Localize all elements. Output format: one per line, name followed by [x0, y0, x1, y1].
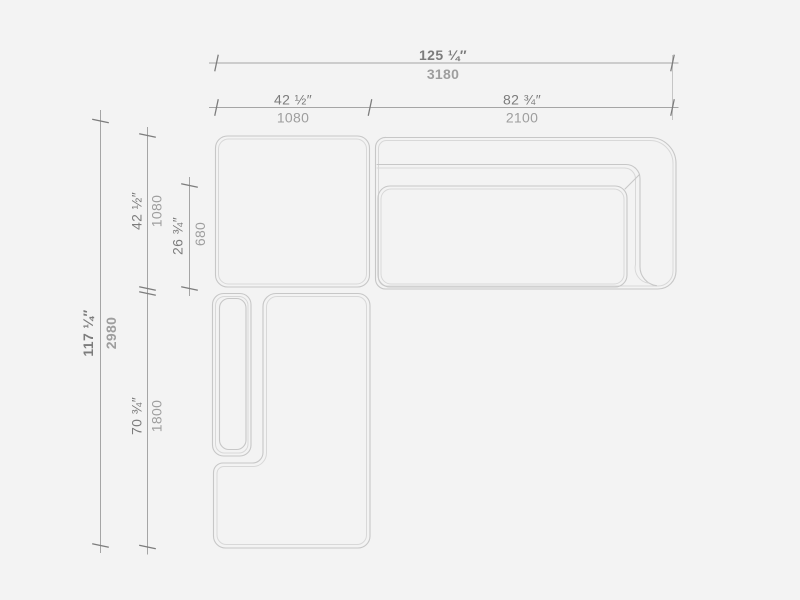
dim-overall-depth-inches-label: 117 ¼″ [80, 309, 96, 356]
sofa-seat-cushion-inner [381, 189, 624, 284]
sofa-corner-seam-line [625, 175, 640, 190]
dim-corner-width-mm-label: 1080 [277, 109, 309, 125]
sofa-module-inner-outline [379, 141, 674, 287]
dim-corner-depth-mm-label: 1080 [148, 195, 164, 227]
dim-overall-depth-mm-label: 2980 [103, 317, 119, 349]
dimension-lines [101, 55, 679, 555]
dim-cushion-depth-inches-label: 26 ¾″ [169, 217, 185, 255]
dim-chaise-depth-inches-label: 70 ¾″ [128, 397, 144, 435]
sofa-backrest-inner-line [377, 165, 657, 286]
sofa-seat-cushion-outer [378, 186, 627, 287]
dimension-labels: 125 ¼″ 3180 42 ½″ 1080 82 ¾″ 2100 117 ¼″… [80, 47, 541, 435]
chaise-armrest-cushion [220, 299, 247, 450]
dim-overall-width-mm-label: 3180 [427, 66, 459, 82]
chaise-armrest-inner-outline [216, 297, 249, 454]
dim-overall-width-inches-label: 125 ¼″ [419, 47, 467, 63]
dim-sofa-width-inches-label: 82 ¾″ [503, 91, 541, 107]
drawing-svg: 125 ¼″ 3180 42 ½″ 1080 82 ¾″ 2100 117 ¼″… [0, 0, 800, 600]
sectional-sofa-plan-drawing: 125 ¼″ 3180 42 ½″ 1080 82 ¾″ 2100 117 ¼″… [0, 0, 800, 600]
dim-chaise-depth-mm-label: 1800 [148, 400, 164, 432]
dim-sofa-width-mm-label: 2100 [506, 109, 538, 125]
dimension-ticks [92, 55, 674, 549]
corner-module-outer-outline [216, 136, 370, 287]
dim-corner-depth-inches-label: 42 ½″ [128, 192, 144, 230]
chaise-armrest-outer-outline [213, 294, 252, 457]
furniture-outlines [213, 136, 677, 548]
chaise-seat-outer-outline [214, 294, 371, 549]
dim-cushion-depth-mm-label: 680 [192, 222, 208, 246]
sofa-module-outer-outline [376, 137, 677, 289]
corner-module-inner-outline [219, 139, 367, 284]
chaise-seat-inner-outline [217, 297, 367, 545]
sofa-backrest-inner-line-2 [377, 168, 649, 283]
dim-corner-width-inches-label: 42 ½″ [274, 91, 312, 107]
